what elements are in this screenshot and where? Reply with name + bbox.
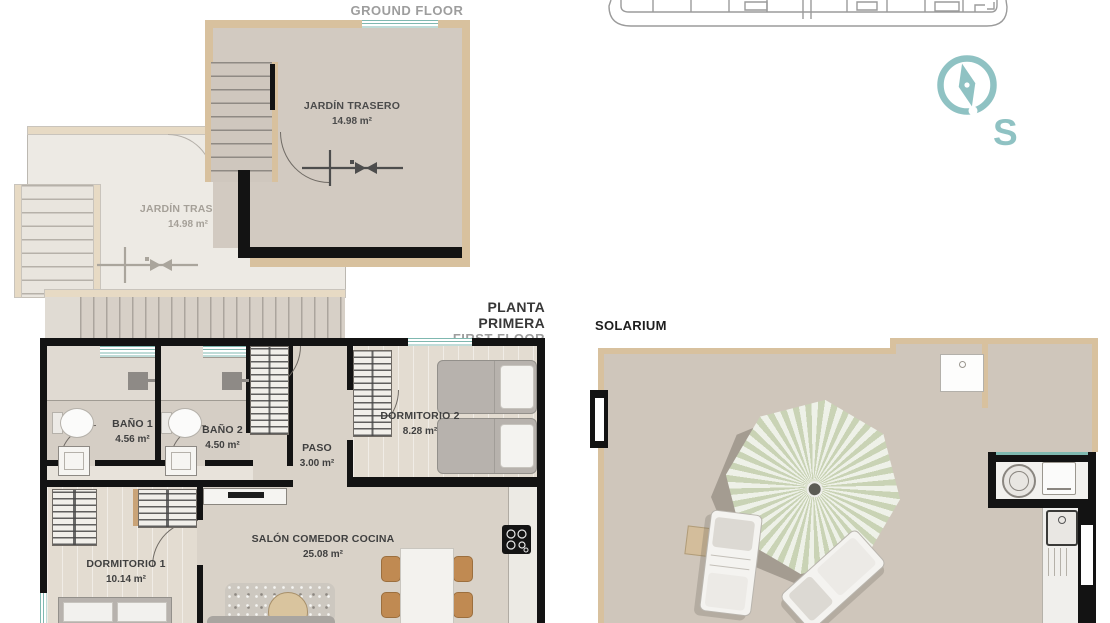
room-name: SALÓN COMEDOR COCINA: [223, 533, 423, 547]
sink-basin: [171, 452, 191, 470]
clothesline-icon: [95, 245, 200, 285]
room-name: PASO: [277, 442, 357, 456]
wall: [598, 348, 890, 354]
sink: [1046, 510, 1078, 546]
blanket-fold: [494, 419, 495, 473]
wardrobe: [52, 489, 97, 546]
wall: [1092, 338, 1098, 452]
pillow: [63, 602, 113, 622]
site-overview-plan: [595, 0, 1015, 60]
room-name: BAÑO 2: [185, 424, 260, 438]
toilet: [60, 408, 94, 438]
drainer: [1048, 548, 1072, 576]
shower-fixture-arm: [148, 379, 155, 382]
wall: [205, 62, 211, 182]
worktop-glass: [996, 452, 1088, 455]
ground-floor-title-en: GROUND FLOOR: [338, 3, 476, 18]
room-name: JARDÍN TRASERO: [297, 100, 407, 114]
pillow: [500, 365, 534, 409]
door-panel: [595, 398, 604, 441]
wall: [205, 20, 213, 68]
room-area: 8.28 m²: [365, 425, 475, 438]
solarium-floor: [896, 344, 1092, 359]
sink-basin: [64, 452, 84, 470]
tv: [228, 492, 264, 498]
wall: [890, 338, 1098, 344]
shower-fixture-arm: [242, 379, 249, 382]
room-name: DORMITORIO 1: [66, 558, 186, 572]
wall: [462, 20, 470, 258]
bbq-grate: [1009, 471, 1029, 491]
room-label-bano2: BAÑO 2 4.50 m²: [185, 424, 260, 452]
wall: [45, 290, 345, 297]
drain: [959, 361, 966, 368]
stairs: [205, 62, 278, 182]
chair: [453, 592, 473, 618]
window: [40, 593, 47, 623]
appliance: [1042, 462, 1076, 495]
solarium-title: SOLARIUM: [595, 318, 667, 333]
room-label-jardin-front: JARDÍN TRASERO 14.98 m²: [297, 100, 407, 128]
wall: [205, 460, 253, 466]
room-label-paso: PASO 3.00 m²: [277, 442, 357, 470]
wall: [197, 565, 203, 623]
room-name: DORMITORIO 2: [365, 410, 475, 424]
bed: [58, 597, 172, 623]
bbq-icon: [1002, 464, 1036, 498]
hob-icon: [502, 525, 531, 554]
shower-fixture: [222, 372, 242, 390]
wall: [155, 346, 161, 465]
room-area: 3.00 m²: [277, 457, 357, 470]
lounger-seam: [710, 564, 750, 570]
compass-icon: [934, 52, 1000, 118]
blanket-fold: [494, 361, 495, 413]
ground-floor-title: PLANTA BAJA GROUND FLOOR: [338, 0, 476, 18]
wall: [238, 247, 462, 258]
landing: [45, 297, 80, 338]
wall: [347, 477, 545, 487]
chair: [453, 556, 473, 582]
stairs: [15, 185, 100, 297]
window: [362, 20, 438, 28]
room-area: 4.56 m²: [95, 433, 170, 446]
room-area: 10.14 m²: [66, 573, 186, 586]
wall: [40, 338, 47, 623]
wall: [250, 258, 470, 267]
lounger-seam: [711, 554, 751, 560]
room-label-salon: SALÓN COMEDOR COCINA 25.08 m²: [223, 533, 423, 561]
lounger-cushion: [712, 517, 755, 552]
bed: [437, 360, 537, 414]
room-label-dormitorio2: DORMITORIO 2 8.28 m²: [365, 410, 475, 438]
room-label-dormitorio1: DORMITORIO 1 10.14 m²: [66, 558, 186, 586]
room-area: 14.98 m²: [297, 115, 407, 128]
room-area: 4.50 m²: [185, 439, 260, 452]
window: [408, 338, 472, 346]
floorplan-canvas: S PLANTA BAJA GROUND FLOOR JARDÍN TRASER…: [0, 0, 1110, 623]
room-name: BAÑO 1: [95, 418, 170, 432]
lounger-cushion: [705, 572, 749, 611]
wall: [47, 480, 293, 487]
first-floor-title-es: PLANTA PRIMERA: [420, 299, 545, 331]
sofa: [207, 616, 335, 623]
window-sill: [100, 346, 158, 358]
wall: [238, 170, 250, 258]
clothesline-icon: [300, 148, 405, 188]
compass: S: [934, 52, 1044, 162]
room-label-bano1: BAÑO 1 4.56 m²: [95, 418, 170, 446]
pillow: [117, 602, 167, 622]
stairs: [80, 297, 345, 338]
chair: [381, 592, 401, 618]
pillow: [500, 424, 534, 468]
wall: [15, 185, 21, 297]
room-area: 25.08 m²: [223, 548, 423, 561]
faucet: [1058, 516, 1066, 524]
wall: [95, 460, 170, 466]
shower-tray: [940, 354, 984, 392]
appliance-knobs: [1047, 488, 1071, 490]
window: [1081, 525, 1093, 585]
wardrobe: [250, 346, 289, 435]
shower-fixture: [128, 372, 148, 390]
parasol-pole: [806, 480, 824, 498]
door-frame: [270, 64, 275, 110]
compass-south-label: S: [993, 112, 1018, 154]
wardrobe: [138, 489, 197, 528]
wall: [28, 127, 220, 134]
kitchen-counter: [508, 487, 538, 623]
